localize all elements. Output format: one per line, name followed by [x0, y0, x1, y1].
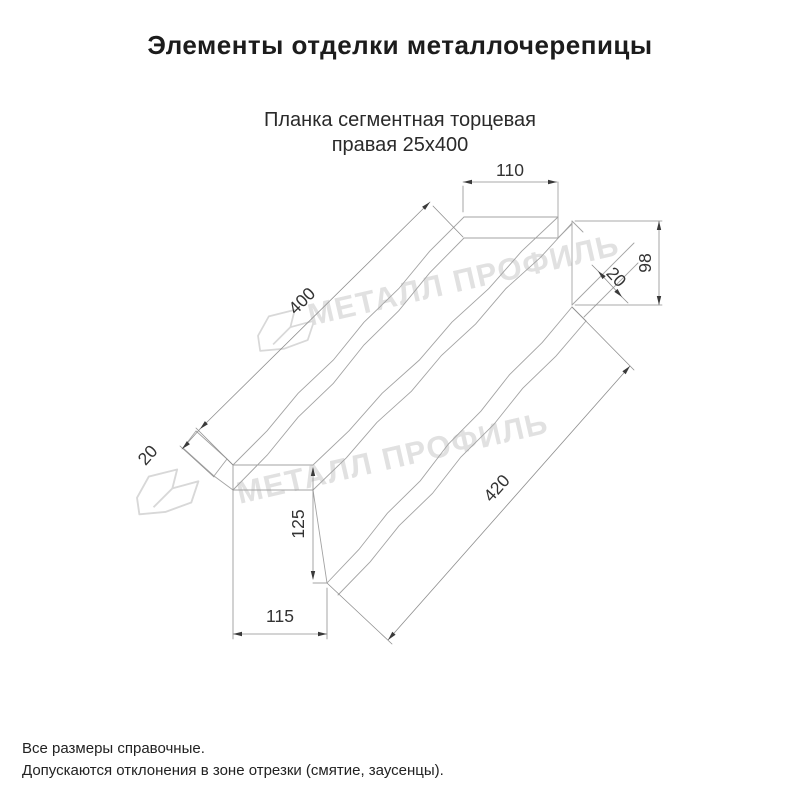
dimension-arrowhead — [548, 180, 557, 184]
brand-watermark-text: МЕТАЛЛ ПРОФИЛЬ — [233, 405, 552, 511]
dimension-arrowhead — [233, 632, 242, 636]
dimension-arrowhead — [463, 180, 472, 184]
brand-watermark-text: МЕТАЛЛ ПРОФИЛЬ — [304, 227, 623, 333]
drawing-line — [572, 307, 634, 370]
drawing-line — [180, 446, 214, 477]
footnote-line2: Допускаются отклонения в зоне отрезки (с… — [22, 760, 444, 782]
drawing-line — [214, 476, 233, 490]
dim-right-flange-label: 20 — [602, 263, 630, 291]
dimension-arrowhead — [318, 632, 327, 636]
drawing-line — [196, 428, 233, 465]
drawing-line — [183, 448, 214, 476]
drawing-line — [327, 583, 392, 644]
drawing-line — [214, 459, 227, 476]
technical-drawing: МЕТАЛЛ ПРОФИЛЬ МЕТАЛЛ ПРОФИЛЬ 110 98 20 … — [0, 0, 800, 800]
drawing-line — [313, 490, 327, 583]
dimension-arrowhead — [657, 221, 661, 230]
dim-left-width-label: 115 — [266, 606, 294, 626]
brand-logo-watermark — [137, 469, 198, 514]
brand-logo-watermark — [258, 310, 314, 351]
footnote-line1: Все размеры справочные. — [22, 738, 444, 760]
dim-front-length-label: 420 — [479, 470, 514, 505]
catalog-page: Элементы отделки металлочерепицы Планка … — [0, 0, 800, 800]
dimension-arrowhead — [182, 441, 190, 449]
drawing-line — [233, 217, 464, 465]
drawing-line — [622, 297, 628, 303]
dim-left-flange-label: 20 — [134, 441, 162, 469]
dim-left-height-label: 125 — [288, 509, 308, 538]
footnotes: Все размеры справочные. Допускаются откл… — [22, 738, 444, 782]
dim-top-width-label: 110 — [496, 160, 524, 180]
dimension-arrowhead — [311, 571, 315, 580]
dim-right-height-label: 98 — [635, 253, 655, 272]
watermark-layer: МЕТАЛЛ ПРОФИЛЬ МЕТАЛЛ ПРОФИЛЬ — [137, 227, 623, 514]
drawing-line — [572, 221, 583, 232]
drawing-line — [200, 202, 430, 429]
dimension-arrowhead — [657, 296, 661, 305]
dimension-labels: 110 98 20 400 20 420 125 115 — [134, 160, 655, 626]
drawing-line — [388, 366, 630, 640]
